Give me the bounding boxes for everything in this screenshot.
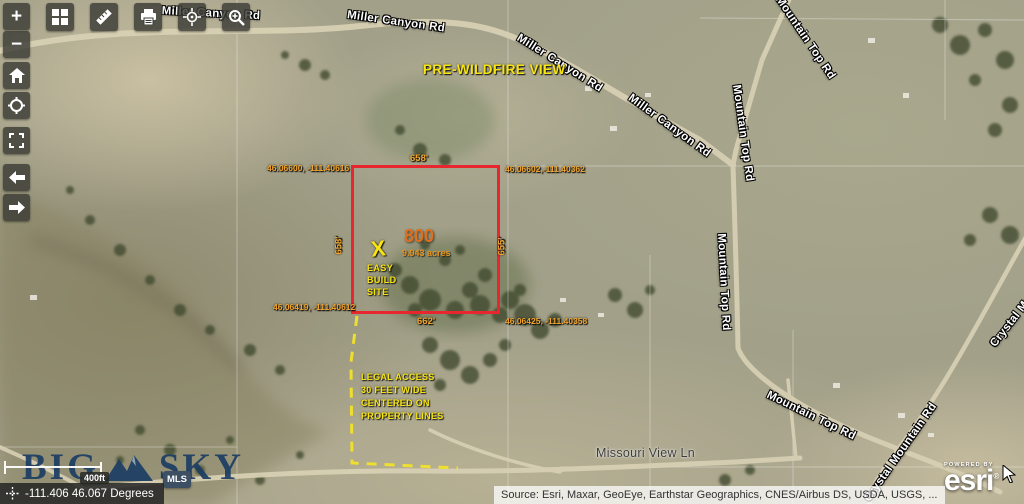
powered-by-esri: POWERED BY esri® [944, 462, 998, 494]
crosshair-icon [6, 487, 19, 500]
coordinate-readout: -111.406 46.067 Degrees [25, 488, 154, 500]
zoom-tool-button[interactable] [222, 3, 250, 31]
gps-crosshair-icon [183, 8, 201, 26]
side-length-bottom: 662' [417, 316, 435, 327]
zoom-in-button[interactable]: + [3, 3, 30, 30]
corner-coordinate-top-left: 46.06600, -111.40616 [267, 163, 349, 173]
zoom-out-button[interactable]: − [3, 31, 30, 58]
basemap-grid-icon [52, 9, 68, 25]
minus-icon: − [11, 35, 22, 54]
back-button[interactable] [3, 164, 30, 191]
plus-icon: + [11, 7, 22, 26]
side-length-left: 658' [334, 236, 345, 254]
gps-button[interactable] [178, 3, 206, 31]
map-canvas[interactable]: Miller Canyon Rd Miller Canyon Rd Miller… [0, 0, 1024, 504]
zoom-magnifier-icon [228, 9, 245, 26]
mls-badge: MLS [163, 471, 191, 488]
legal-access-line-2: 30 FEET WIDE [361, 384, 444, 397]
parcel-number: 800 [404, 226, 434, 247]
home-icon [9, 68, 25, 83]
back-arrow-icon [9, 171, 25, 184]
print-icon [140, 9, 157, 25]
forward-arrow-icon [9, 201, 25, 214]
esri-logo: esri® [944, 468, 998, 494]
fullscreen-button[interactable] [3, 127, 30, 154]
build-site-line-3: SITE [367, 286, 397, 298]
legal-access-line-3: CENTERED ON [361, 397, 444, 410]
home-button[interactable] [3, 62, 30, 89]
locate-icon [8, 97, 25, 114]
build-site-x-marker: X [370, 235, 387, 262]
attribution-bar: Source: Esri, Maxar, GeoEye, Earthstar G… [494, 486, 945, 504]
measure-ruler-icon [95, 8, 113, 26]
forward-button[interactable] [3, 194, 30, 221]
print-button[interactable] [134, 3, 162, 31]
measure-button[interactable] [90, 3, 118, 31]
corner-coordinate-bottom-right: 46.06425, -111.40358 [505, 316, 587, 326]
registered-mark: ® [993, 472, 998, 481]
fullscreen-icon [9, 133, 24, 148]
basemap-button[interactable] [46, 3, 74, 31]
side-length-right: 655' [497, 237, 508, 255]
build-site-line-1: EASY [367, 262, 397, 274]
legal-access-line-1: LEGAL ACCESS [361, 371, 444, 384]
locate-button[interactable] [3, 92, 30, 119]
corner-coordinate-top-right: 46.06602,-111.40362 [505, 164, 585, 174]
build-site-label: EASY BUILD SITE [367, 262, 397, 298]
legal-access-dashed-line [0, 0, 1024, 504]
attribution-text: Source: Esri, Maxar, GeoEye, Earthstar G… [501, 489, 938, 501]
corner-coordinate-bottom-left: 46.06419, -111.40612 [273, 302, 355, 312]
esri-logo-text: esri [944, 464, 993, 497]
cursor-arrow-icon [1002, 465, 1016, 483]
build-site-line-2: BUILD [367, 274, 397, 286]
legal-access-note: LEGAL ACCESS 30 FEET WIDE CENTERED ON PR… [361, 371, 444, 423]
side-length-top: 658' [410, 153, 428, 164]
parcel-acreage: 9.943 acres [402, 248, 451, 258]
legal-access-line-4: PROPERTY LINES [361, 410, 444, 423]
coordinate-readout-bar: -111.406 46.067 Degrees [0, 483, 164, 504]
